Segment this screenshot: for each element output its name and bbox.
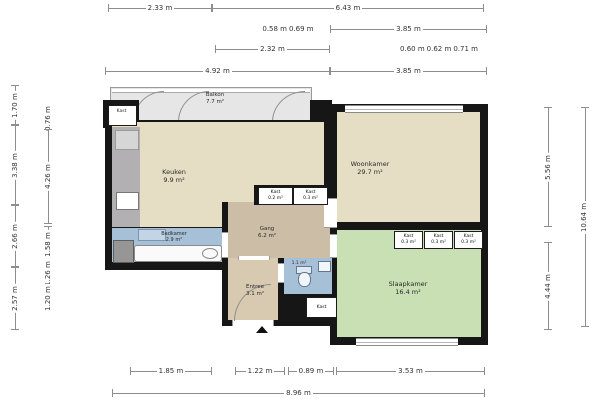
room-area: 9.9 m² — [163, 176, 184, 184]
room-area: 16.4 m² — [395, 288, 420, 296]
room-name: Gang — [260, 226, 275, 233]
dim-bottom-3: 3.53 m — [336, 366, 485, 376]
stove — [116, 192, 139, 210]
dim-top-4: 2.32 m — [215, 44, 330, 54]
closet-area: 0.2 m² — [268, 196, 283, 202]
label-keuken: Keuken 9.9 m² — [139, 168, 209, 184]
toilet — [298, 272, 311, 287]
closet-area: 0.3 m² — [401, 240, 416, 246]
dim-top-1: 6.43 m — [212, 3, 484, 13]
dim-top-5: 0.60 m0.62 m0.71 m — [388, 44, 490, 54]
dim-right-inner-0: 5.56 m — [543, 107, 553, 227]
dim-left-outer-2: 2.66 m — [10, 205, 20, 267]
closet-slaapkamer-2: Kast 0.3 m² — [424, 231, 453, 249]
dim-left-inner-3: 1.26 m — [43, 262, 53, 285]
dim-left-outer-3: 2.57 m — [10, 267, 20, 330]
label-slaapkamer: Slaapkamer 16.4 m² — [373, 280, 443, 296]
dim-top-2: 0.58 m0.69 m — [248, 24, 328, 34]
dim-left-inner-0: 0.76 m — [43, 107, 53, 129]
dim-top-0: 2.33 m — [108, 3, 212, 13]
door-gang-badkamer — [222, 232, 228, 258]
dim-left-outer-1: 3.38 m — [10, 125, 20, 205]
window-woonkamer — [345, 105, 463, 113]
dim-top-6: 4.92 m — [105, 66, 330, 76]
floor-plan-canvas: Kast 0.2 m² Kast 0.3 m² Kast 0.3 m² Kast… — [0, 0, 600, 400]
label-gang: Gang 6.2 m² — [237, 226, 297, 240]
wall-balcony-end — [310, 100, 332, 124]
label-badkamer: Badkamer 2.9 m² — [139, 231, 209, 244]
closet-name: Kast — [317, 305, 327, 311]
room-name: Woonkamer — [351, 160, 390, 168]
dim-left-inner-1: 4.26 m — [43, 129, 53, 224]
dim-bottom-1: 1.22 m — [235, 366, 285, 376]
closet-entree: Kast — [306, 297, 337, 318]
dim-top-7: 3.85 m — [330, 66, 487, 76]
dim-bottom-2: 0.89 m — [288, 366, 334, 376]
label-entree: Entree 3.1 m² — [230, 284, 280, 298]
label-balkon: Balkon 7.7 m² — [180, 92, 250, 106]
room-area: 3.1 m² — [246, 291, 264, 298]
closet-area: 0.3 m² — [461, 240, 476, 246]
dim-bottom-0: 1.85 m — [130, 366, 212, 376]
door-toilet — [278, 263, 284, 283]
closet-gang-2: Kast 0.3 m² — [293, 187, 328, 205]
closet-slaapkamer-1: Kast 0.3 m² — [394, 231, 423, 249]
closet-area: 0.3 m² — [303, 196, 318, 202]
room-area: 29.7 m² — [357, 168, 382, 176]
room-area: 1.1 m² — [292, 261, 307, 267]
dim-top-3: 3.85 m — [330, 24, 487, 34]
room-area: 7.7 m² — [206, 99, 224, 106]
room-name: Kast — [117, 109, 127, 115]
label-kast-top-left: Kast — [108, 109, 135, 115]
room-name: Keuken — [162, 168, 186, 176]
kitchen-sink — [115, 130, 139, 150]
window-slaapkamer — [356, 338, 458, 346]
door-gang-slaapkamer — [330, 234, 337, 258]
dim-right-outer-0: 10.64 m — [580, 107, 590, 327]
bathtub-faucet — [202, 248, 218, 259]
dim-left-inner-2: 1.58 m — [43, 226, 53, 262]
room-name: Balkon — [206, 92, 225, 99]
closet-area: 0.3 m² — [431, 240, 446, 246]
label-woonkamer: Woonkamer 29.7 m² — [335, 160, 405, 176]
label-toilet: 1.1 m² — [286, 261, 312, 267]
closet-slaapkamer-3: Kast 0.3 m² — [454, 231, 483, 249]
dim-left-outer-0: 1.70 m — [10, 85, 20, 125]
toilet-sink — [318, 261, 331, 272]
room-name: Slaapkamer — [389, 280, 428, 288]
door-gang-entree — [238, 256, 270, 260]
dim-right-inner-1: 4.44 m — [543, 242, 553, 330]
entrance-arrow-icon — [256, 326, 268, 333]
closet-gang-1: Kast 0.2 m² — [258, 187, 293, 205]
room-name: Entree — [246, 284, 264, 291]
dim-left-inner-4: 1.20 m — [43, 285, 53, 312]
room-area: 6.2 m² — [258, 233, 276, 240]
room-area: 2.9 m² — [166, 237, 182, 243]
washer — [113, 240, 134, 263]
dim-bottom-4: 8.96 m — [112, 388, 485, 398]
